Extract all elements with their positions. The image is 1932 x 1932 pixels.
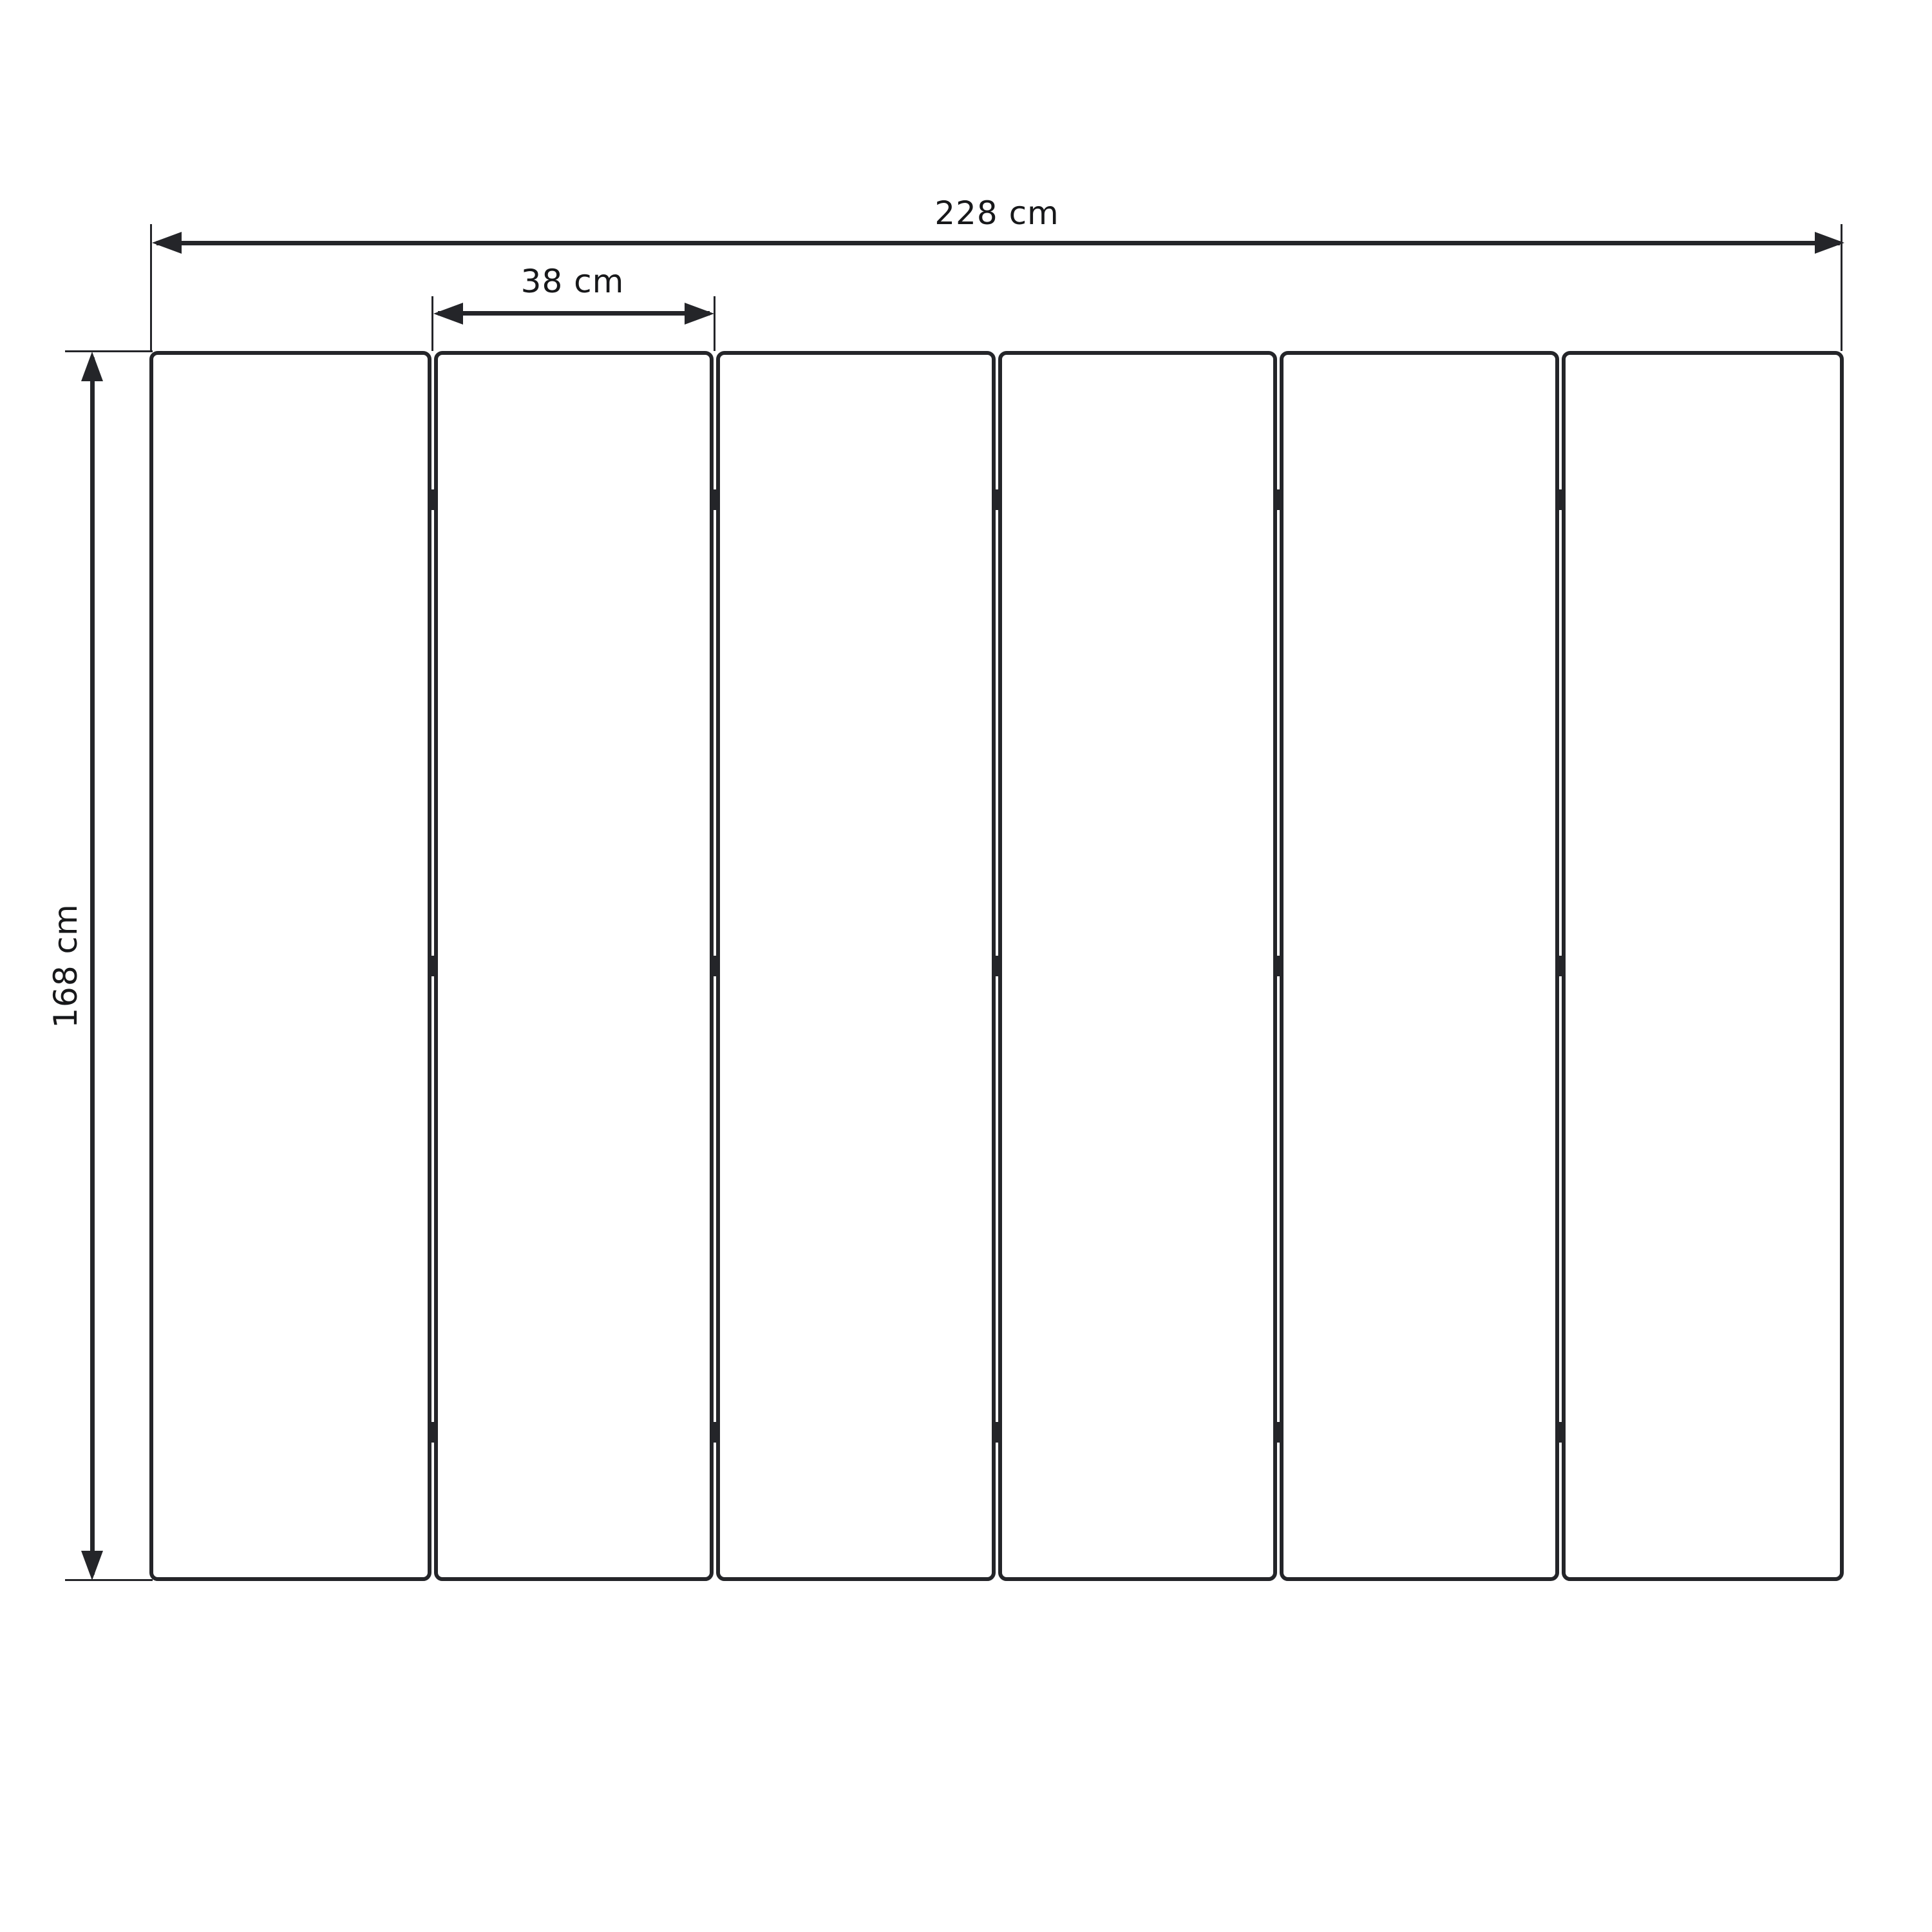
extension-line-bottom [65,1579,153,1581]
hinge-mark [992,1422,1002,1443]
arrowhead-left-icon [152,232,182,254]
arrowhead-right-icon [685,303,714,325]
hinge-mark [992,956,1002,976]
hinge-mark [1273,489,1283,510]
hinge-mark [1555,1422,1566,1443]
hinge-mark [428,1422,438,1443]
panel-2 [434,351,714,1581]
panel-width-label: 38 cm [521,265,625,298]
arrowhead-left-icon [433,303,463,325]
total-width-label: 228 cm [934,197,1059,229]
hinge-mark [710,489,720,510]
arrowhead-down-icon [81,1551,103,1580]
arrowhead-right-icon [1815,232,1844,254]
hinge-mark [1273,1422,1283,1443]
dimension-line-total-width [156,241,1840,245]
panel-5 [1280,351,1559,1581]
hinge-mark [1555,956,1566,976]
hinge-mark [428,956,438,976]
arrowhead-up-icon [81,352,103,381]
hinge-mark [992,489,1002,510]
extension-line-top [65,350,153,352]
hinge-mark [710,1422,720,1443]
hinge-mark [710,956,720,976]
height-label: 168 cm [50,904,82,1028]
hinge-mark [428,489,438,510]
dimension-line-panel-width [438,311,710,316]
panel-3 [716,351,996,1581]
drawing-canvas: 228 cm 38 cm 168 cm [0,0,1932,1932]
panel-4 [998,351,1277,1581]
dimension-line-height [90,357,95,1575]
panel-1 [149,351,431,1581]
panel-6 [1562,351,1844,1581]
hinge-mark [1555,489,1566,510]
hinge-mark [1273,956,1283,976]
